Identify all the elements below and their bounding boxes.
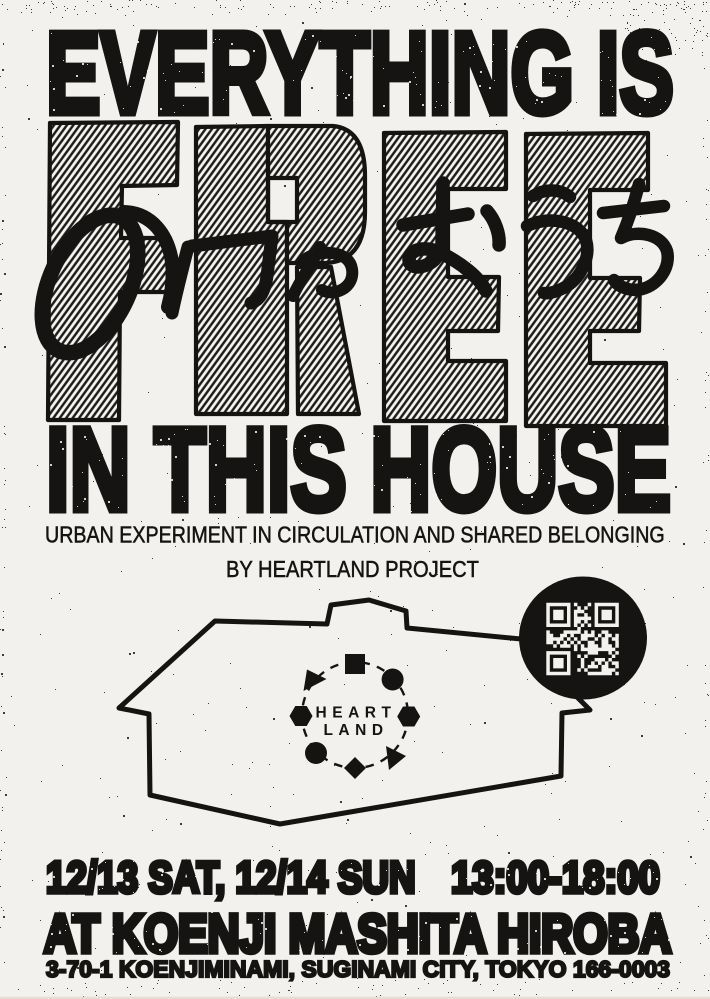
svg-text:IN THIS HOUSE: IN THIS HOUSE <box>46 403 671 535</box>
svg-text:EVERYTHING IS: EVERYTHING IS <box>46 9 674 138</box>
svg-text:3-70-1 KOENJIMINAMI, SUGINAMI: 3-70-1 KOENJIMINAMI, SUGINAMI CITY, TOKY… <box>46 956 670 982</box>
svg-text:BY HEARTLAND PROJECT: BY HEARTLAND PROJECT <box>226 556 479 583</box>
svg-text:HEART: HEART <box>316 705 397 722</box>
svg-text:LAND: LAND <box>323 722 388 739</box>
svg-text:13:00-18:00: 13:00-18:00 <box>451 852 660 902</box>
svg-text:URBAN EXPERIMENT IN CIRCULATIO: URBAN EXPERIMENT IN CIRCULATION AND SHAR… <box>45 521 665 548</box>
